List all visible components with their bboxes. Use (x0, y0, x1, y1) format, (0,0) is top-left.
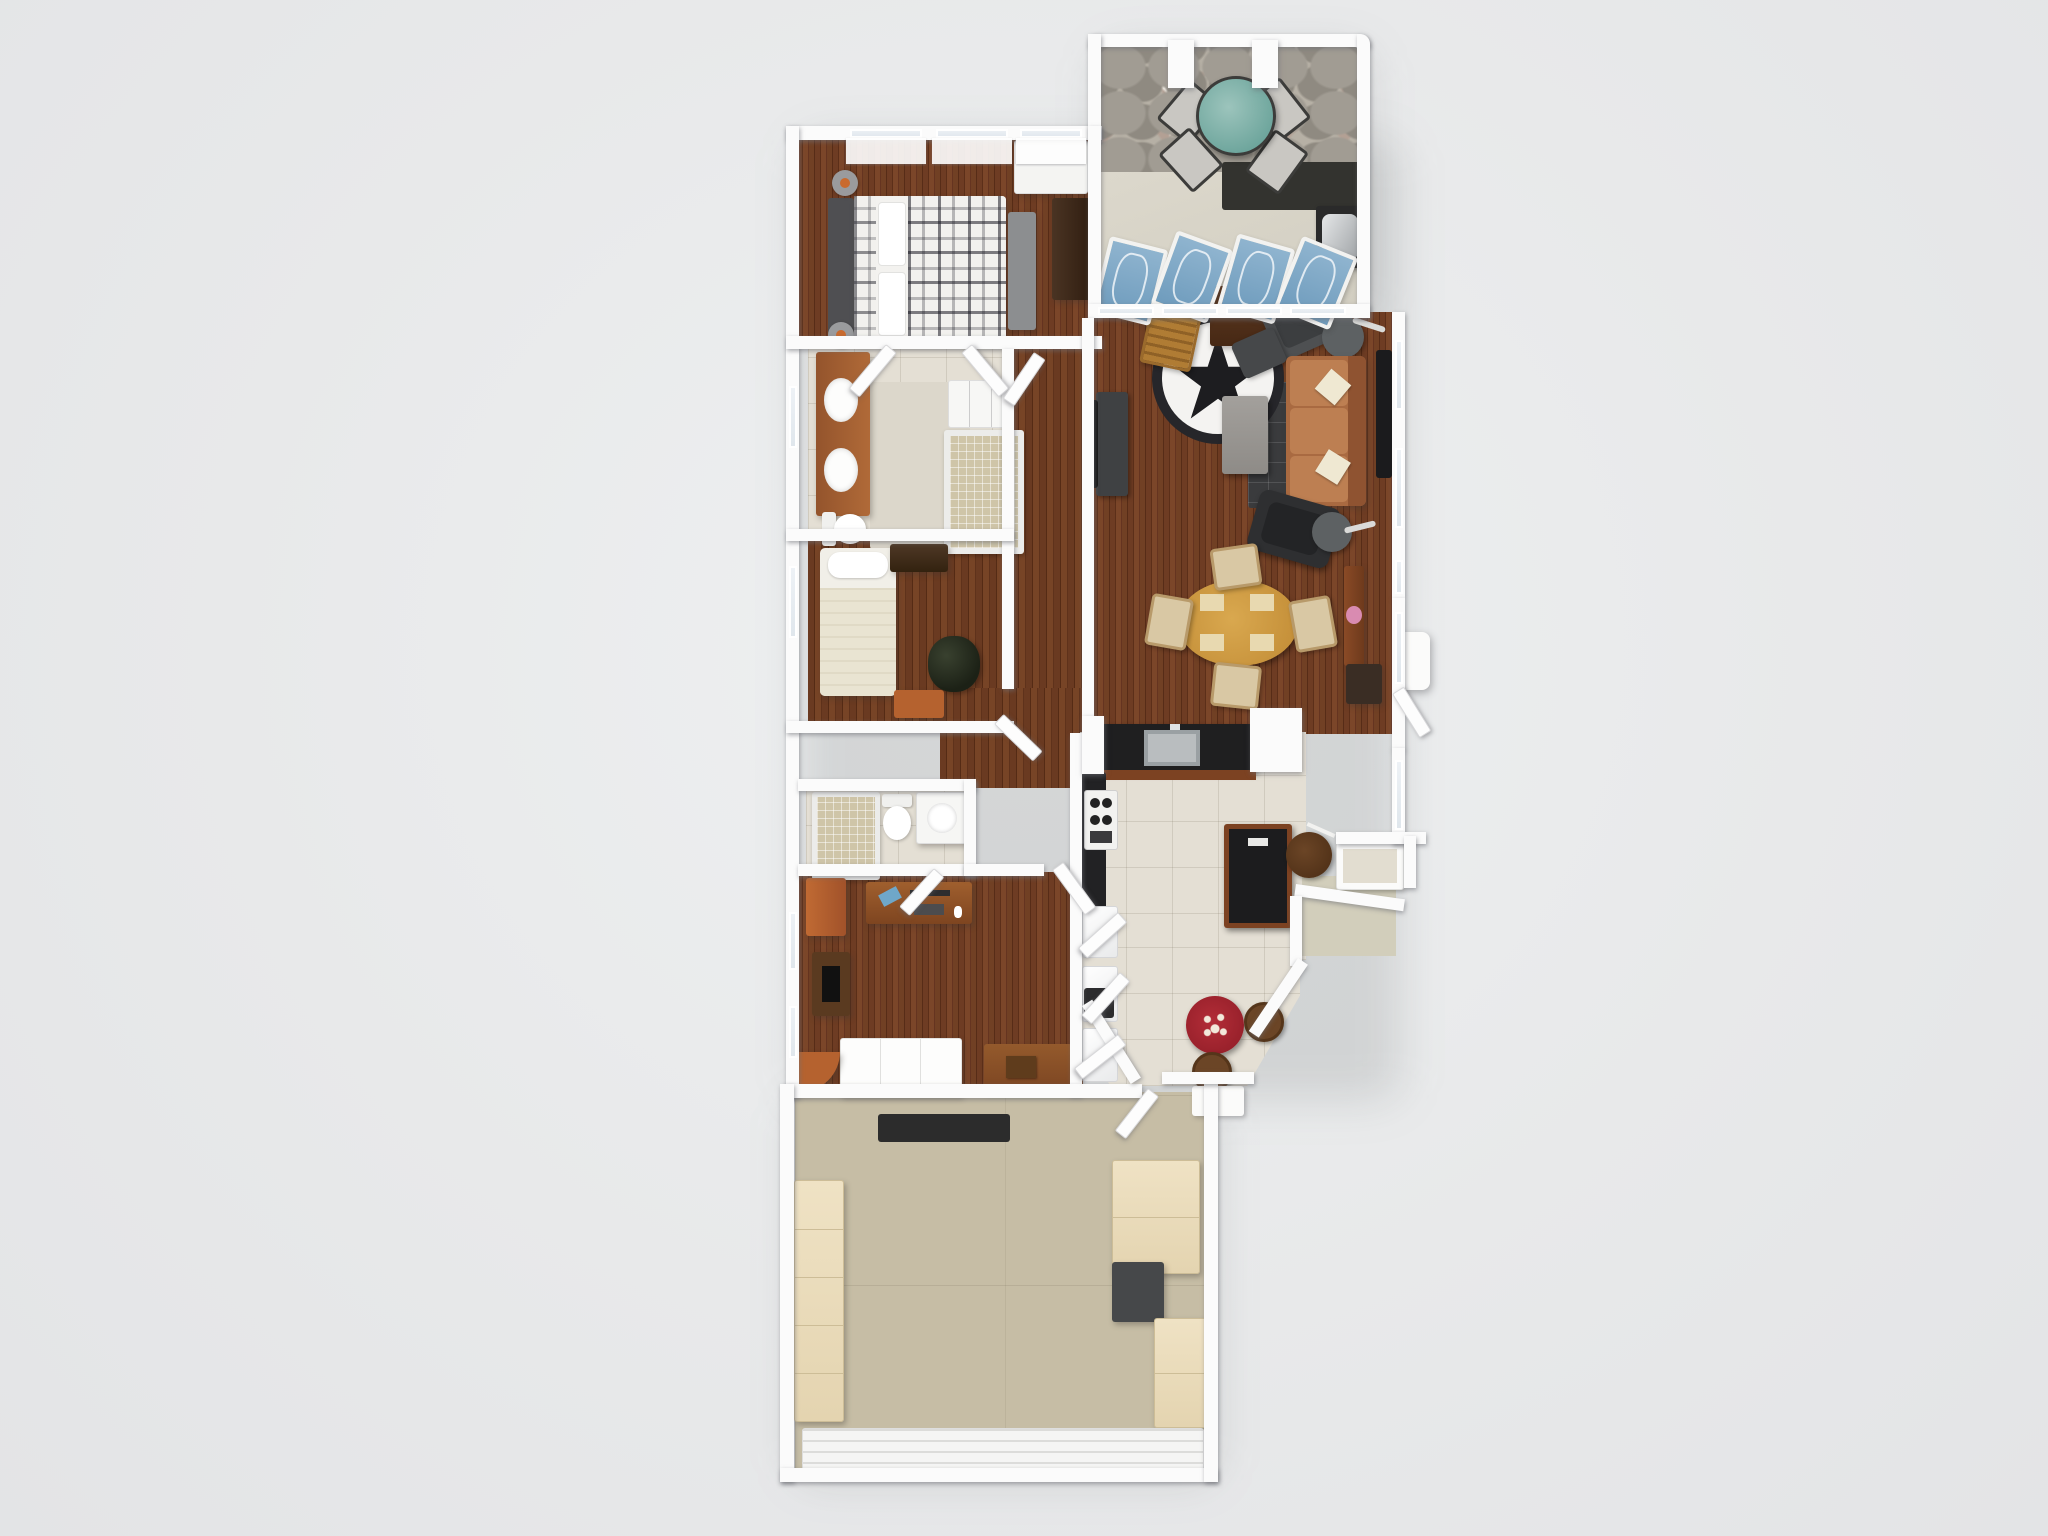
shelf-line (795, 1277, 843, 1278)
bench-cushion (1343, 849, 1397, 883)
floor-plan-stage (0, 0, 2048, 1536)
glass-patio-table (1196, 76, 1276, 156)
file-cabinet-orange (806, 878, 846, 936)
sofa-cushion (1290, 408, 1348, 454)
floral-pattern (1196, 1006, 1234, 1044)
garage-cabinets-right-lower (1154, 1318, 1208, 1428)
candle (840, 178, 850, 188)
terracotta-sofa (1286, 356, 1366, 506)
garage-entry-step (1192, 1086, 1244, 1116)
shelf-line (1155, 1373, 1207, 1374)
wall-patio-top (1088, 34, 1370, 47)
garage-cabinets-left (794, 1180, 844, 1422)
wall-hall-right (1082, 318, 1094, 734)
tv-screen (822, 966, 840, 1002)
wall-bedroom-right (1088, 126, 1101, 318)
window (1395, 340, 1403, 410)
tv-console (1096, 392, 1128, 496)
window (789, 912, 797, 970)
wall-kitchen-left (1070, 733, 1082, 1096)
accent-nightstand (894, 690, 944, 718)
toilet-2 (880, 794, 914, 844)
window-sill (932, 138, 1012, 164)
window (1020, 129, 1082, 138)
window (1395, 560, 1403, 594)
window-bench (1336, 842, 1404, 890)
wall-bath2-bottom (798, 864, 976, 876)
pillow (828, 552, 888, 578)
wall-garage-top (786, 1084, 1142, 1098)
sink-peninsula (1092, 724, 1256, 772)
shelf-line (1113, 1217, 1199, 1218)
plaid-duvet (908, 196, 1006, 344)
patio-pillar (1252, 40, 1278, 88)
window-sill (1016, 138, 1086, 164)
single-bed (820, 548, 896, 696)
wall-bath2-right (964, 779, 976, 876)
sofa-back (1348, 356, 1366, 506)
burner (1102, 798, 1112, 808)
paper-blue (878, 886, 902, 907)
wall-art-tv (1376, 350, 1392, 478)
oval-dining-table (1178, 580, 1298, 666)
utility-unit (1112, 1262, 1164, 1322)
wardrobe (1052, 198, 1092, 300)
sunroom-window (1226, 307, 1282, 315)
garage-cabinets-right-upper (1112, 1160, 1200, 1274)
window (1395, 612, 1403, 684)
wall-counter-stub-left (1082, 716, 1104, 774)
burner (1102, 815, 1112, 825)
potted-plant (928, 636, 980, 692)
shelf-line (795, 1373, 843, 1374)
console-table (1344, 566, 1364, 666)
range-stove (1084, 790, 1118, 850)
faucet (1170, 724, 1180, 730)
window (1395, 448, 1403, 528)
window (789, 386, 797, 448)
placemat (1200, 594, 1224, 611)
wall-office-top-stub (964, 864, 1044, 876)
media-stand (812, 952, 850, 1016)
dresser (890, 544, 948, 572)
sunroom-window (1290, 307, 1346, 315)
cabinet-front (1092, 770, 1256, 780)
wall-bath2-top (798, 779, 976, 791)
window (789, 1006, 797, 1058)
wall-bay-right-vert (1290, 896, 1302, 966)
dining-chair (1209, 543, 1262, 591)
wall-bench-right (1404, 836, 1416, 888)
sink (927, 803, 957, 833)
master-bed (854, 196, 1006, 344)
storage-box (1006, 1056, 1036, 1078)
foot-bench (1008, 212, 1036, 330)
shelf-divider (969, 381, 970, 427)
toilet-bowl (883, 806, 911, 840)
wall-patio-deck-right (1357, 34, 1370, 318)
window (936, 129, 1008, 138)
sink (824, 448, 858, 492)
wall-garage-left (780, 1084, 794, 1482)
pillow (878, 202, 906, 266)
round-stool (1286, 832, 1332, 878)
placemat (1250, 634, 1274, 651)
shelf-line (795, 1229, 843, 1230)
window (789, 566, 797, 638)
kitchen-sink (1144, 730, 1200, 766)
mouse (954, 906, 962, 918)
placemat (1250, 594, 1274, 611)
kitchen-island (1224, 824, 1292, 928)
burner (1090, 798, 1100, 808)
window (1395, 760, 1403, 830)
pillow (878, 272, 906, 336)
wall-garage-bottom (780, 1468, 1218, 1482)
sunroom-window (1098, 307, 1154, 315)
sunroom-window (1162, 307, 1218, 315)
wall-bath-bed2 (786, 529, 1014, 541)
wall-garage-right (1204, 1084, 1218, 1482)
wall-bay-bottom (1162, 1072, 1254, 1084)
dining-chair (1144, 593, 1194, 652)
dining-chair (1288, 595, 1338, 654)
patio-pillar (1168, 40, 1194, 88)
vanity-2 (916, 792, 968, 844)
wall-bed2-bottom (786, 721, 1014, 733)
dining-chair (1210, 662, 1262, 711)
wall-counter-stub-right (1250, 708, 1302, 772)
workbench (878, 1114, 1010, 1142)
shelf-line (795, 1325, 843, 1326)
blanket (820, 588, 896, 696)
plaid-pillow-roll (854, 196, 876, 344)
burner (1090, 815, 1100, 825)
coffee-table (1222, 396, 1268, 474)
island-item (1248, 838, 1268, 846)
window (850, 129, 922, 138)
nightstand (832, 170, 858, 196)
window-sill (846, 138, 926, 164)
placemat (1200, 634, 1224, 651)
red-nook-table (1186, 996, 1244, 1054)
waste-bin (1346, 664, 1382, 704)
flowers (1346, 606, 1362, 624)
wall-bath-top (786, 336, 1102, 349)
oven-door (1090, 831, 1112, 843)
